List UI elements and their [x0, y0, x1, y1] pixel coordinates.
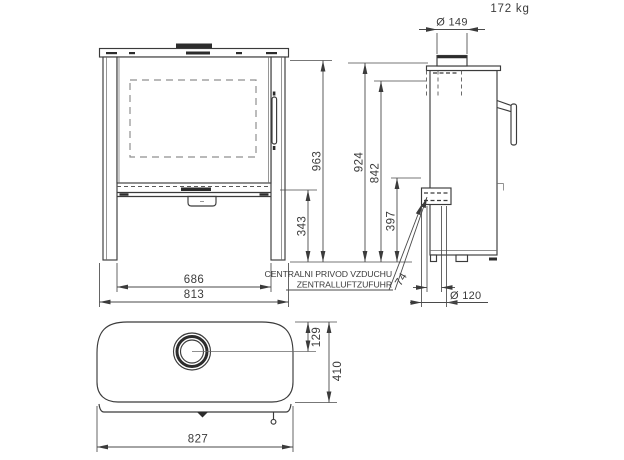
handle-pivot-top-view: [271, 412, 276, 424]
door-edge-mark: [497, 184, 504, 191]
top-plate-outline: [97, 322, 293, 402]
dim-body-width: 686: [184, 274, 204, 286]
dim-height-overall: 963: [312, 151, 324, 171]
latch-top-view: [197, 412, 208, 418]
dim-height-to-top: 924: [354, 152, 366, 173]
dim-plinth-height: 343: [297, 216, 309, 236]
weight-label: 172 kg: [490, 3, 529, 15]
stove-dimension-drawing: 686 813 343 963: [0, 0, 624, 460]
front-edge-line: [99, 404, 291, 412]
stove-body-side: [430, 71, 497, 256]
top-plate-side: [427, 66, 501, 71]
dim-flue-diameter: Ø 149: [436, 17, 467, 29]
front-view: [100, 44, 289, 261]
door-handle-front: [272, 92, 277, 151]
door-handle-side: [497, 101, 517, 146]
side-view: [422, 56, 517, 262]
dim-inlet-height: 397: [386, 211, 398, 231]
door-bottom-rail: [117, 187, 271, 197]
dim-top-width: 827: [188, 434, 208, 446]
air-inlet-box: [422, 188, 452, 205]
note-line-1: CENTRALNI PRIVOD VZDUCHU: [265, 269, 392, 279]
note-line-2: ZENTRALLUFTZUFUHR: [297, 280, 392, 290]
left-side-panel: [103, 57, 117, 260]
dim-inlet-diameter: Ø 120: [450, 290, 481, 302]
right-side-panel: [271, 57, 285, 260]
dim-width-overall: 813: [184, 289, 204, 301]
dim-flue-center-offset: 129: [311, 327, 323, 347]
stove-door: [117, 57, 271, 183]
flue-collar-front: [176, 44, 212, 49]
drawing-canvas: 686 813 343 963: [0, 0, 624, 460]
rear-foot: [431, 255, 437, 262]
dim-height-rear: 842: [370, 163, 382, 183]
top-plan-view: [97, 322, 316, 424]
front-foot: [456, 255, 468, 262]
dim-depth-overall: 410: [332, 361, 344, 381]
